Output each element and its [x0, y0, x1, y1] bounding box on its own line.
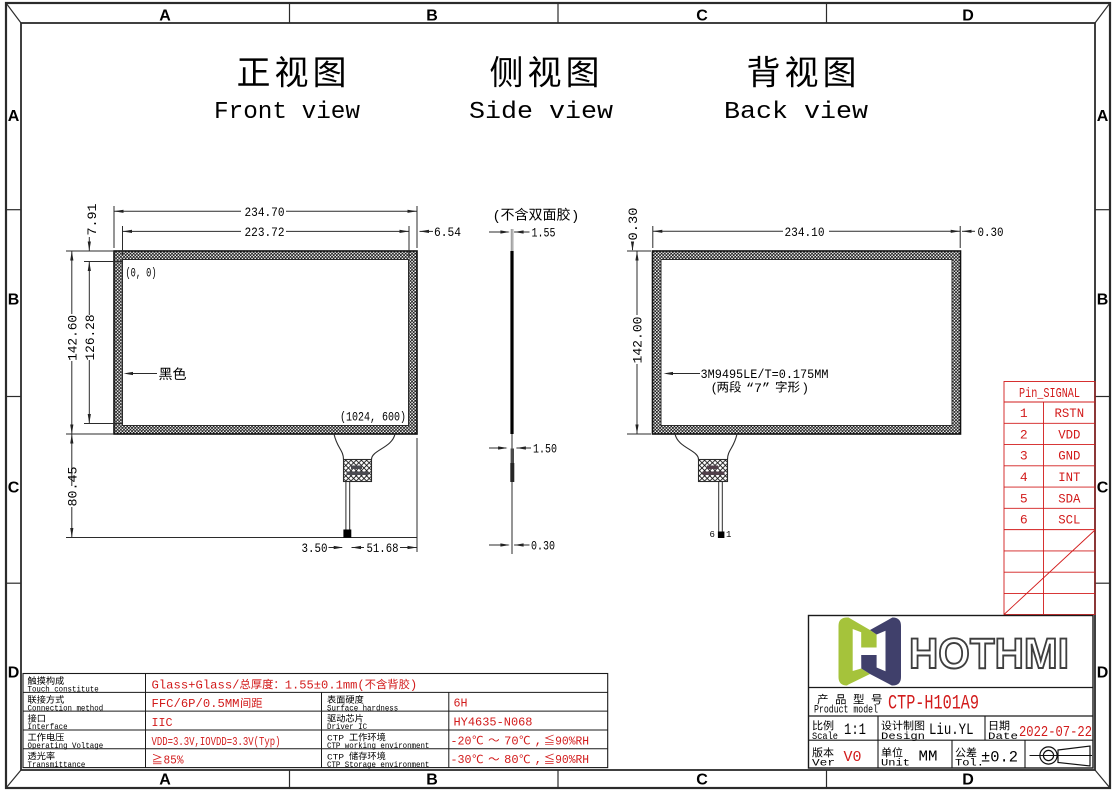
svg-text:126.28: 126.28 — [83, 315, 98, 361]
svg-text:90%RH: 90%RH — [555, 753, 589, 767]
svg-text:GND: GND — [1058, 449, 1080, 464]
svg-text:HOTHMI: HOTHMI — [909, 631, 1069, 678]
svg-text:6.54: 6.54 — [434, 225, 461, 240]
svg-text:90%RH: 90%RH — [555, 734, 589, 748]
svg-text:(1024, 600): (1024, 600) — [340, 410, 406, 425]
svg-text:80: 80 — [504, 753, 518, 767]
svg-text:3: 3 — [1020, 449, 1028, 464]
svg-text:A: A — [8, 108, 20, 125]
svg-text:SCL: SCL — [1058, 513, 1080, 528]
svg-text:5: 5 — [1020, 491, 1028, 506]
svg-text:D: D — [962, 8, 974, 25]
svg-text:Side view: Side view — [469, 99, 614, 126]
svg-text:CTP-H101A9: CTP-H101A9 — [888, 693, 979, 716]
svg-text:): ) — [802, 382, 810, 396]
svg-text:VDD=3.3V,IOVDD=3.3V(Typ): VDD=3.3V,IOVDD=3.3V(Typ) — [152, 735, 281, 749]
svg-text:Transmittance: Transmittance — [28, 760, 86, 770]
svg-text:(0, 0): (0, 0) — [126, 266, 157, 281]
svg-text:Front view: Front view — [214, 99, 361, 126]
svg-text:FFC/6P/0.5MM: FFC/6P/0.5MM — [152, 697, 240, 711]
svg-text:A: A — [1097, 108, 1109, 125]
svg-text:SDA: SDA — [1058, 491, 1080, 506]
svg-text:Date: Date — [988, 731, 1018, 743]
svg-text:Driver IC: Driver IC — [327, 722, 367, 732]
svg-text:±0.2: ±0.2 — [981, 749, 1018, 767]
svg-text:6: 6 — [710, 530, 715, 540]
svg-text:Tol.: Tol. — [955, 757, 984, 769]
svg-text:“7”: “7” — [746, 381, 770, 396]
svg-text:IIC: IIC — [152, 716, 173, 730]
svg-text:80.45: 80.45 — [65, 467, 80, 507]
svg-text:0.30: 0.30 — [978, 225, 1004, 240]
svg-text:): ) — [410, 678, 417, 692]
svg-text:234.70: 234.70 — [245, 205, 285, 220]
svg-text:CTP Storage environment: CTP Storage environment — [327, 760, 429, 770]
svg-text:-20: -20 — [451, 734, 472, 748]
svg-text:HY4635-N068: HY4635-N068 — [454, 715, 533, 729]
svg-text:142.00: 142.00 — [631, 317, 646, 364]
svg-text:V0: V0 — [844, 749, 862, 766]
svg-text:234.10: 234.10 — [785, 225, 825, 240]
svg-text:-30: -30 — [451, 753, 472, 767]
svg-text:6H: 6H — [454, 696, 468, 710]
svg-text:A: A — [159, 8, 171, 25]
svg-text:Liu.YL: Liu.YL — [929, 721, 974, 739]
svg-text:2022-07-22: 2022-07-22 — [1019, 725, 1092, 741]
svg-text:2: 2 — [1020, 427, 1028, 442]
svg-text:B: B — [1097, 292, 1109, 309]
svg-text:Glass+Glass/: Glass+Glass/ — [152, 678, 240, 692]
svg-text:(: ( — [711, 382, 719, 396]
svg-text:Connection method: Connection method — [28, 703, 104, 713]
svg-text:MM: MM — [919, 749, 938, 766]
svg-text:C: C — [1097, 480, 1109, 497]
svg-text:4: 4 — [1020, 470, 1028, 485]
svg-text:0.30: 0.30 — [626, 208, 641, 241]
svg-text:Design: Design — [881, 731, 925, 743]
svg-text:Unit: Unit — [881, 757, 910, 769]
svg-text:70: 70 — [504, 734, 518, 748]
svg-text:1: 1 — [726, 530, 731, 540]
svg-text:,: , — [535, 753, 542, 767]
svg-text:INT: INT — [1058, 470, 1080, 485]
svg-text:1.50: 1.50 — [533, 441, 557, 456]
svg-text:7.91: 7.91 — [85, 203, 100, 235]
svg-text:6: 6 — [1020, 513, 1028, 528]
svg-text:B: B — [8, 292, 20, 309]
svg-text:Surface hardness: Surface hardness — [327, 703, 398, 713]
svg-text:D: D — [1097, 665, 1109, 682]
svg-text:B: B — [426, 772, 438, 789]
svg-text:Interface: Interface — [28, 722, 68, 732]
svg-text:1: 1 — [1020, 406, 1028, 421]
svg-text:1.55±0.1mm(: 1.55±0.1mm( — [285, 678, 365, 692]
svg-text:3.50: 3.50 — [302, 541, 328, 556]
svg-text:85%: 85% — [164, 754, 185, 768]
svg-text:51.68: 51.68 — [367, 541, 399, 556]
svg-text:C: C — [8, 480, 20, 497]
svg-text:B: B — [426, 8, 438, 25]
svg-text:1.55: 1.55 — [532, 225, 556, 240]
svg-text:223.72: 223.72 — [245, 225, 285, 240]
svg-text:Back view: Back view — [724, 99, 869, 126]
svg-text:3M9495LE/T=0.175MM: 3M9495LE/T=0.175MM — [701, 367, 829, 382]
svg-text:Product model: Product model — [814, 705, 878, 717]
svg-text:D: D — [8, 665, 20, 682]
svg-text:D: D — [962, 772, 974, 789]
svg-text:RSTN: RSTN — [1055, 406, 1085, 421]
svg-text:142.60: 142.60 — [65, 315, 80, 361]
svg-text:Touch constitute: Touch constitute — [28, 685, 99, 695]
svg-text:Pin_SIGNAL: Pin_SIGNAL — [1019, 386, 1080, 402]
svg-text:C: C — [696, 772, 708, 789]
svg-text:): ) — [571, 209, 579, 225]
svg-text:A: A — [159, 772, 171, 789]
svg-text:0.30: 0.30 — [531, 538, 555, 553]
svg-text:Scale: Scale — [812, 731, 838, 743]
svg-text:,: , — [535, 734, 542, 748]
svg-text:Ver: Ver — [812, 757, 835, 769]
svg-text:VDD: VDD — [1058, 427, 1080, 442]
svg-text:1:1: 1:1 — [844, 721, 866, 739]
svg-text:Operating Voltage: Operating Voltage — [28, 741, 104, 751]
svg-text:CTP working environment: CTP working environment — [327, 741, 429, 751]
svg-text:C: C — [696, 8, 708, 25]
svg-text:(: ( — [493, 209, 501, 225]
